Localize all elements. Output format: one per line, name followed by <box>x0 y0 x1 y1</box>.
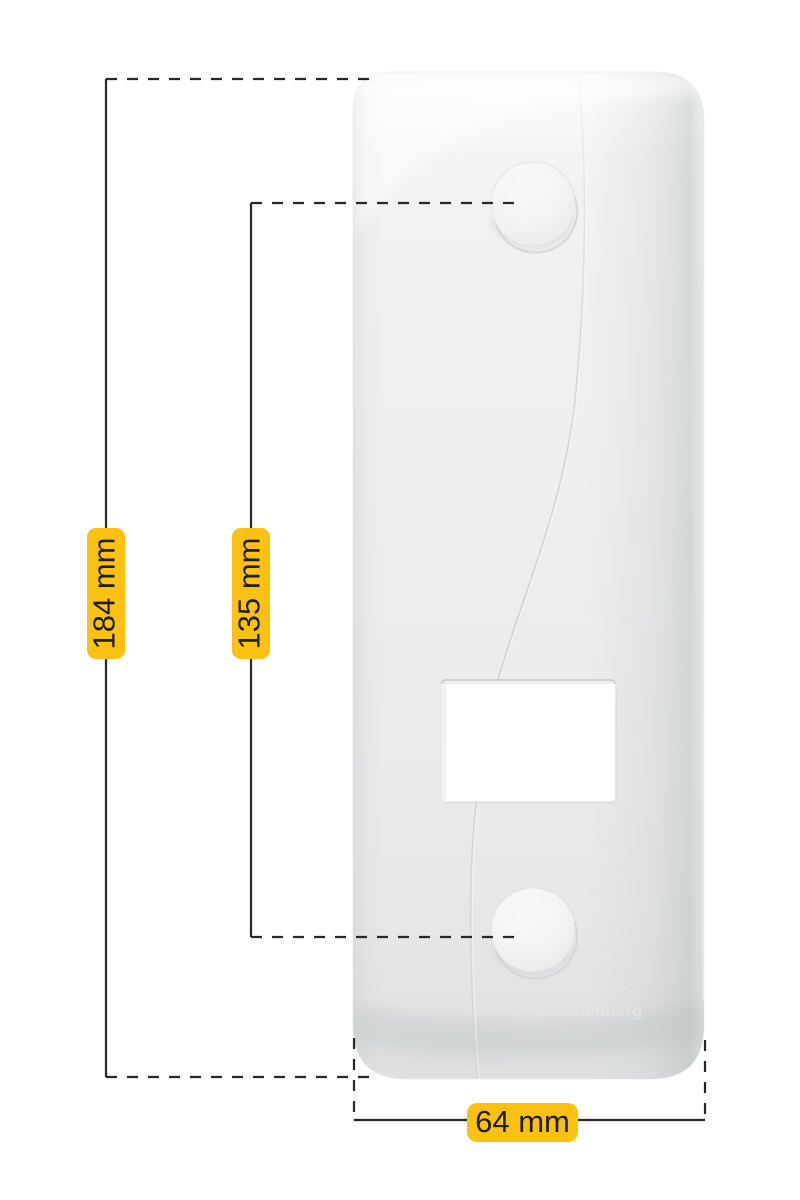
svg-text:64 mm: 64 mm <box>475 1104 570 1139</box>
svg-text:184 mm: 184 mm <box>87 538 122 650</box>
svg-text:schellenberg: schellenberg <box>536 1003 643 1021</box>
svg-text:135 mm: 135 mm <box>232 538 267 650</box>
